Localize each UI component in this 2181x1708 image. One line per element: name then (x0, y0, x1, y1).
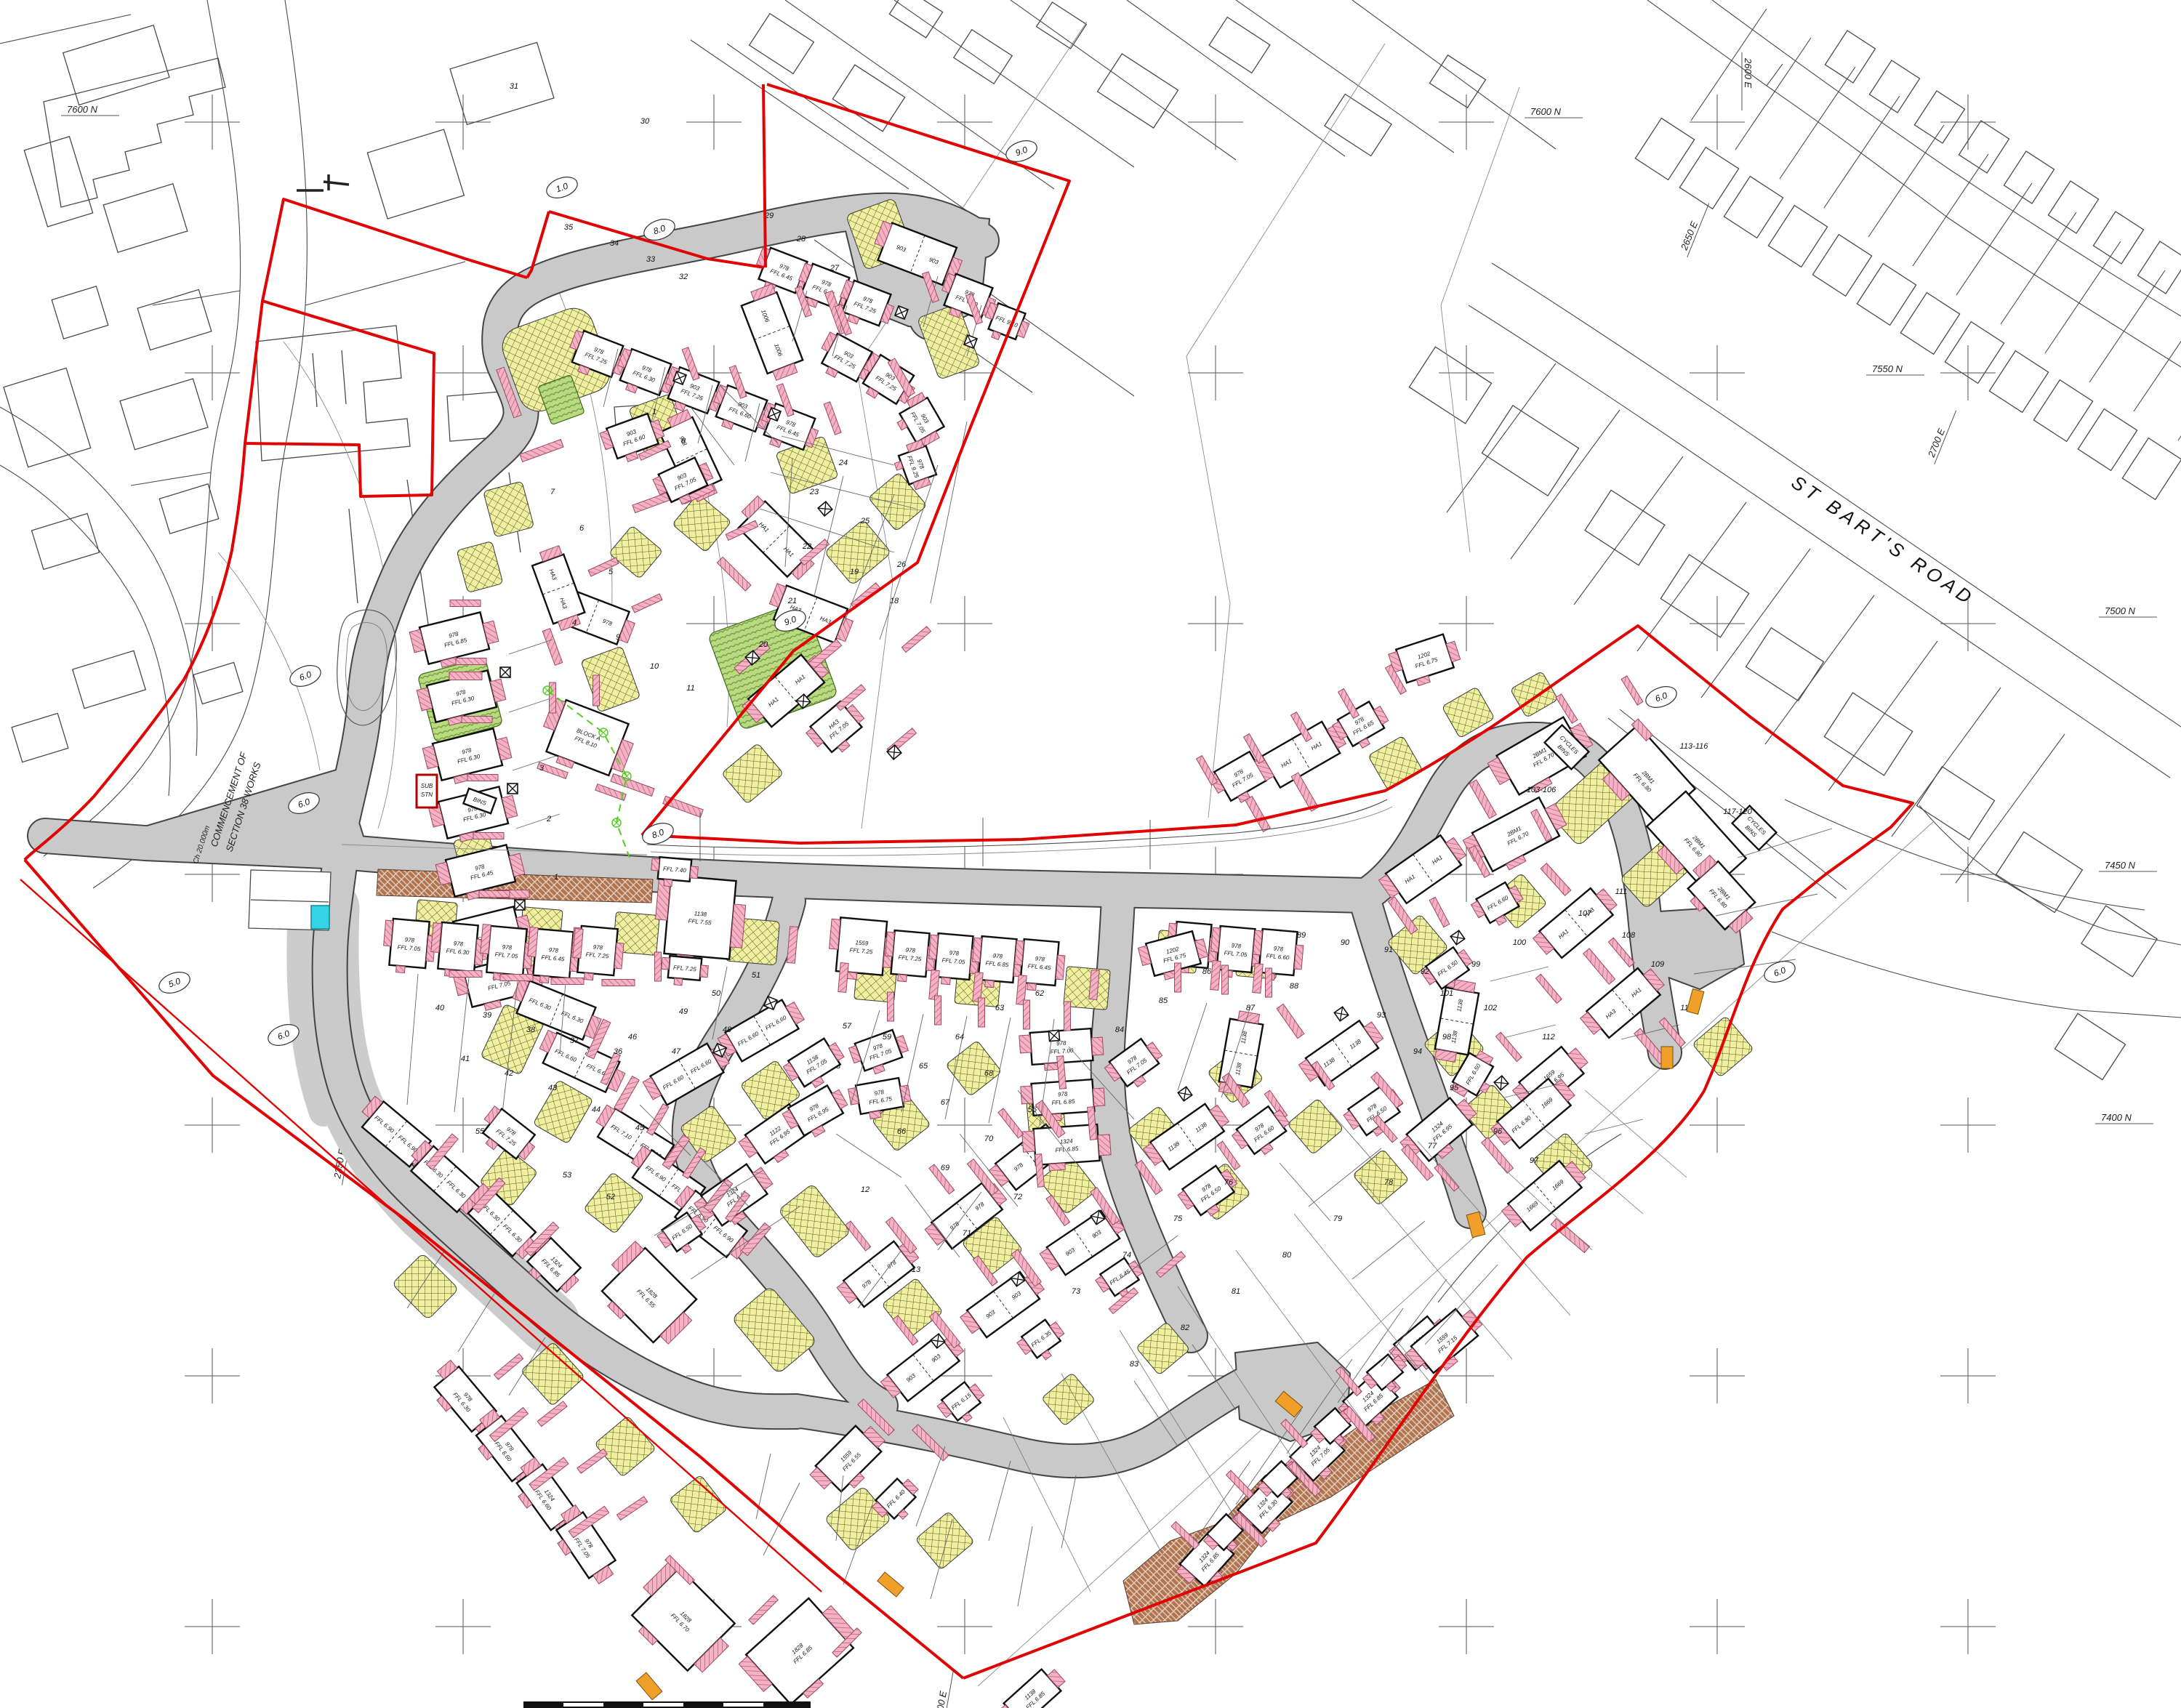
svg-text:74: 74 (1122, 1251, 1131, 1260)
svg-text:86: 86 (1202, 967, 1212, 976)
svg-text:78: 78 (1384, 1178, 1394, 1187)
svg-text:73: 73 (1072, 1287, 1081, 1296)
svg-text:27: 27 (830, 264, 840, 273)
svg-text:978: 978 (593, 943, 603, 951)
svg-text:94: 94 (1413, 1047, 1422, 1056)
svg-text:35: 35 (564, 223, 574, 232)
svg-text:38: 38 (526, 1026, 536, 1034)
svg-text:978: 978 (949, 949, 960, 956)
svg-text:13: 13 (912, 1265, 921, 1274)
svg-text:8: 8 (681, 437, 686, 446)
svg-text:77: 77 (1428, 1142, 1437, 1151)
svg-text:64: 64 (955, 1033, 964, 1042)
svg-text:111: 111 (1615, 887, 1628, 896)
svg-text:STN: STN (421, 791, 433, 798)
svg-text:7600 N: 7600 N (67, 104, 98, 115)
svg-text:79: 79 (1333, 1214, 1342, 1223)
svg-text:50: 50 (712, 989, 721, 998)
svg-text:7400 N: 7400 N (2101, 1112, 2132, 1123)
svg-text:978: 978 (502, 943, 513, 951)
svg-text:9: 9 (616, 633, 620, 642)
svg-text:10: 10 (650, 662, 659, 671)
svg-text:1138: 1138 (694, 910, 707, 918)
svg-text:90: 90 (1341, 938, 1350, 947)
svg-text:72: 72 (1013, 1193, 1022, 1201)
svg-text:57: 57 (843, 1022, 852, 1031)
svg-text:103-106: 103-106 (1527, 786, 1557, 794)
svg-text:53: 53 (563, 1171, 572, 1180)
svg-text:978: 978 (1231, 942, 1242, 949)
svg-text:69: 69 (941, 1164, 949, 1172)
svg-text:101: 101 (1440, 989, 1453, 998)
svg-text:96: 96 (1493, 1127, 1503, 1136)
svg-text:68: 68 (984, 1069, 994, 1078)
svg-text:2600 E: 2600 E (1743, 57, 1754, 89)
svg-text:978: 978 (905, 946, 916, 954)
svg-text:42: 42 (505, 1069, 513, 1078)
svg-text:75: 75 (1173, 1214, 1183, 1223)
svg-text:978: 978 (992, 952, 1003, 959)
svg-text:70: 70 (984, 1135, 994, 1143)
svg-text:7: 7 (550, 488, 555, 496)
svg-text:59: 59 (883, 1033, 891, 1042)
svg-text:91: 91 (1384, 946, 1393, 954)
svg-text:100: 100 (1513, 938, 1527, 947)
svg-text:28: 28 (796, 235, 806, 243)
svg-text:51: 51 (752, 971, 760, 980)
svg-text:23: 23 (809, 488, 819, 496)
svg-text:80: 80 (1282, 1251, 1292, 1260)
svg-text:12: 12 (861, 1185, 869, 1194)
svg-text:978: 978 (1035, 955, 1045, 962)
svg-text:76: 76 (1224, 1178, 1234, 1187)
svg-text:37: 37 (570, 1036, 579, 1045)
svg-text:5: 5 (608, 568, 614, 576)
svg-text:95: 95 (1450, 1084, 1459, 1092)
svg-text:71: 71 (963, 1229, 971, 1238)
svg-text:31: 31 (510, 82, 518, 91)
svg-text:52: 52 (606, 1193, 615, 1201)
svg-text:3: 3 (539, 764, 545, 773)
svg-text:36: 36 (614, 1047, 623, 1056)
svg-text:83: 83 (1130, 1360, 1139, 1369)
svg-text:109: 109 (1651, 960, 1664, 969)
svg-text:117-120: 117-120 (1723, 807, 1752, 816)
svg-text:49: 49 (679, 1007, 688, 1016)
svg-text:26: 26 (896, 560, 907, 569)
svg-text:108: 108 (1622, 931, 1636, 940)
svg-text:40: 40 (435, 1004, 445, 1012)
svg-text:89: 89 (1297, 931, 1306, 940)
svg-text:85: 85 (1159, 996, 1168, 1005)
svg-text:82: 82 (1181, 1324, 1189, 1332)
svg-text:978: 978 (548, 946, 559, 954)
svg-text:62: 62 (1035, 989, 1044, 998)
svg-text:102: 102 (1484, 1004, 1497, 1012)
svg-text:1: 1 (652, 408, 656, 416)
svg-text:978: 978 (404, 936, 415, 943)
svg-text:66: 66 (897, 1127, 907, 1136)
svg-text:33: 33 (646, 255, 656, 264)
svg-text:7600 N: 7600 N (1530, 106, 1562, 117)
svg-text:21: 21 (787, 597, 797, 605)
svg-text:20: 20 (758, 640, 768, 649)
svg-text:81: 81 (1232, 1287, 1240, 1296)
svg-text:30: 30 (640, 117, 650, 126)
svg-text:112: 112 (1542, 1033, 1555, 1042)
svg-text:92: 92 (1421, 967, 1429, 976)
svg-text:11: 11 (686, 684, 694, 693)
svg-text:43: 43 (548, 1084, 558, 1092)
svg-text:44: 44 (592, 1105, 601, 1114)
svg-text:978: 978 (1273, 945, 1284, 952)
svg-text:7500 N: 7500 N (2105, 605, 2136, 616)
svg-text:7550 N: 7550 N (1872, 363, 1903, 374)
svg-text:978: 978 (1058, 1091, 1068, 1098)
svg-text:47: 47 (672, 1047, 681, 1056)
svg-text:1: 1 (554, 873, 558, 882)
svg-text:25: 25 (860, 517, 870, 525)
svg-text:98: 98 (1442, 1033, 1452, 1042)
svg-text:99: 99 (1471, 960, 1480, 969)
svg-text:46: 46 (628, 1033, 638, 1042)
svg-text:34: 34 (610, 239, 619, 248)
svg-text:22: 22 (802, 542, 811, 551)
svg-text:4: 4 (572, 619, 577, 627)
svg-text:19: 19 (850, 568, 859, 576)
svg-text:2: 2 (546, 815, 551, 823)
svg-text:978: 978 (453, 940, 464, 947)
svg-text:93: 93 (1377, 1011, 1386, 1020)
svg-text:41: 41 (461, 1055, 470, 1063)
svg-text:39: 39 (483, 1011, 491, 1020)
svg-text:32: 32 (679, 273, 688, 281)
svg-text:48: 48 (723, 1026, 732, 1034)
svg-text:67: 67 (941, 1098, 950, 1107)
svg-text:65: 65 (919, 1062, 928, 1071)
svg-text:63: 63 (995, 1004, 1005, 1012)
svg-text:7450 N: 7450 N (2105, 860, 2136, 871)
svg-text:1324: 1324 (1059, 1137, 1073, 1145)
svg-text:1559: 1559 (855, 939, 869, 947)
svg-text:45: 45 (635, 1124, 645, 1132)
svg-text:88: 88 (1290, 982, 1299, 991)
svg-text:97: 97 (1530, 1156, 1539, 1165)
svg-text:24: 24 (838, 459, 848, 467)
svg-text:84: 84 (1115, 1026, 1124, 1034)
svg-text:107: 107 (1578, 909, 1592, 918)
svg-text:113-116: 113-116 (1680, 742, 1709, 751)
svg-text:SUB: SUB (421, 783, 433, 789)
svg-text:87: 87 (1246, 1004, 1256, 1012)
svg-text:6: 6 (579, 524, 585, 533)
